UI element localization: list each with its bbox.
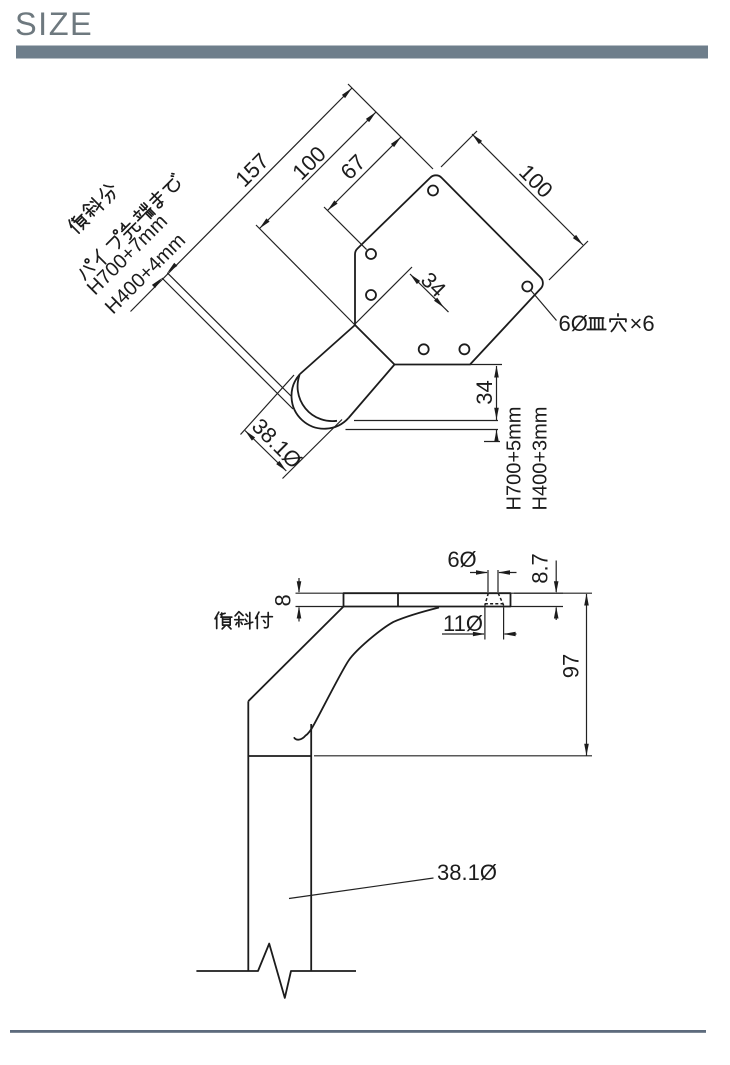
svg-text:100: 100 — [287, 141, 331, 185]
svg-text:67: 67 — [336, 150, 371, 185]
svg-text:34: 34 — [416, 267, 451, 302]
svg-text:8: 8 — [271, 594, 296, 606]
svg-text:6Ø: 6Ø — [447, 547, 476, 572]
svg-text:×6: ×6 — [630, 311, 655, 336]
svg-text:11Ø: 11Ø — [443, 611, 483, 636]
svg-text:8.7: 8.7 — [528, 553, 553, 584]
svg-text:6Ø: 6Ø — [559, 311, 588, 336]
svg-text:H400+3mm: H400+3mm — [530, 407, 552, 511]
svg-text:H700+5mm: H700+5mm — [504, 407, 526, 511]
svg-text:100: 100 — [514, 159, 558, 203]
svg-text:38.1Ø: 38.1Ø — [437, 860, 497, 885]
svg-text:97: 97 — [559, 654, 584, 678]
svg-text:SIZE: SIZE — [15, 6, 93, 42]
svg-text:157: 157 — [230, 148, 274, 192]
svg-text:34: 34 — [472, 380, 497, 404]
